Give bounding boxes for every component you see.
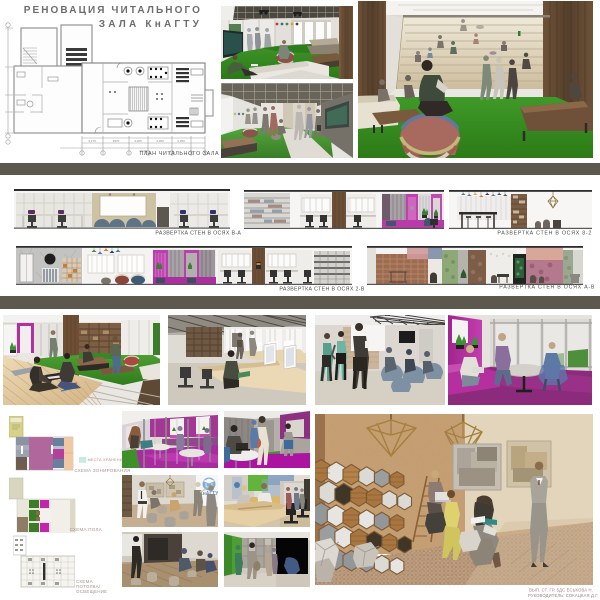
svg-text:4,350: 4,350 (177, 139, 185, 143)
svg-text:4,350: 4,350 (156, 139, 164, 143)
svg-text:3,175: 3,175 (88, 139, 96, 143)
svg-text:3,025: 3,025 (134, 139, 142, 143)
svg-text:3970: 3970 (113, 139, 120, 143)
